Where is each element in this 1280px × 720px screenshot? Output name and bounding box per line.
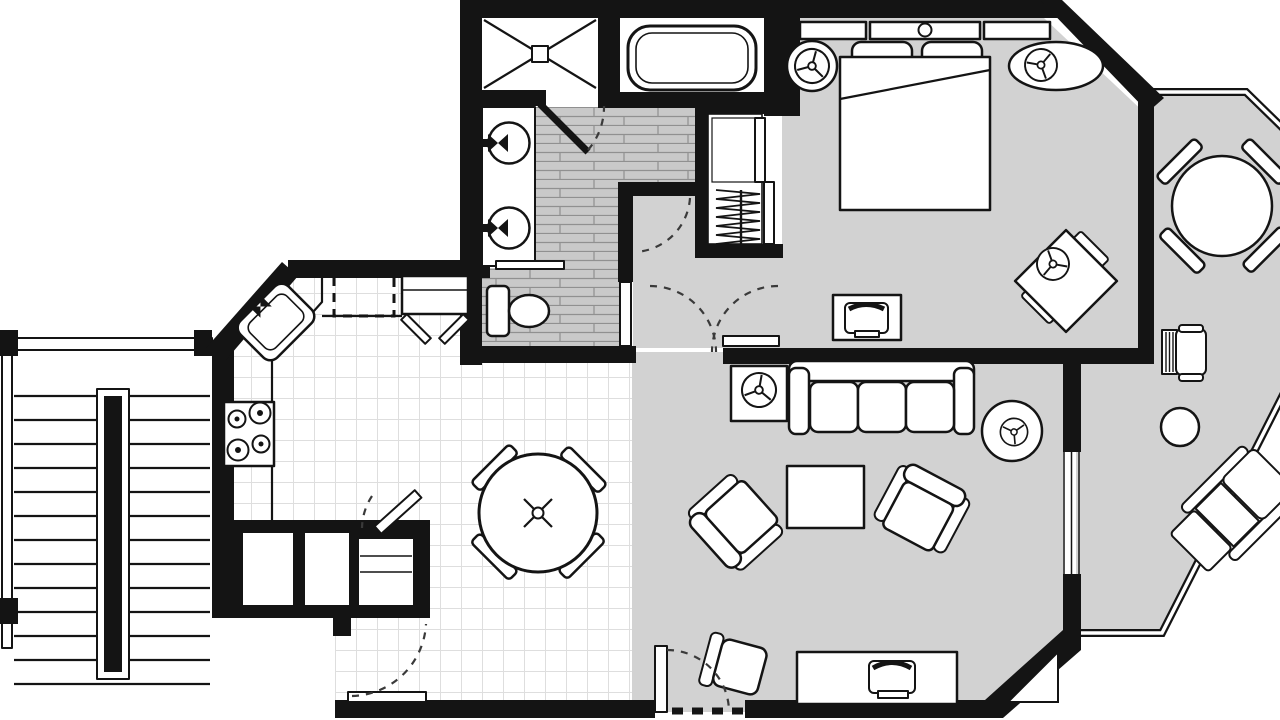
railing-post bbox=[0, 330, 18, 356]
wall-shower-divider bbox=[598, 0, 620, 108]
wall-top bbox=[460, 0, 1060, 18]
bedroom-tv-cabinet bbox=[833, 295, 901, 340]
sofa bbox=[789, 361, 974, 434]
side-table bbox=[1161, 408, 1199, 446]
shower-icon bbox=[482, 18, 598, 90]
wall-closet-south bbox=[695, 244, 783, 258]
bathroom-door-panel bbox=[620, 282, 631, 346]
stairs-top-railing bbox=[2, 338, 212, 350]
headboard bbox=[800, 22, 1050, 39]
nightstand-lamp-icon bbox=[787, 41, 837, 91]
dining-area bbox=[471, 444, 607, 580]
wall-closet-west bbox=[695, 100, 708, 258]
closet bbox=[708, 114, 774, 244]
media-console bbox=[797, 652, 957, 704]
hall-door-panel bbox=[723, 336, 779, 346]
wall-closet-north bbox=[695, 100, 800, 114]
coffee-table bbox=[787, 466, 864, 528]
wall-living-east-lower bbox=[1063, 574, 1081, 634]
closet-sliding-door bbox=[755, 118, 765, 182]
stairs-handrail-core bbox=[104, 396, 122, 672]
wall-bath-east bbox=[618, 196, 633, 282]
square-end-table bbox=[731, 366, 787, 421]
round-end-table bbox=[982, 401, 1042, 461]
cooktop-icon bbox=[224, 402, 274, 466]
wall-living-east-upper bbox=[1063, 352, 1081, 452]
side-chair bbox=[1162, 325, 1206, 381]
nightstand-lamp-icon bbox=[1009, 42, 1103, 90]
wall-utility-stub bbox=[333, 616, 351, 636]
railing-post bbox=[194, 330, 212, 356]
closet-sliding-door bbox=[764, 182, 774, 244]
bathtub-icon bbox=[628, 26, 756, 90]
bed bbox=[840, 42, 990, 210]
wall-nook-north bbox=[618, 182, 713, 196]
stairs bbox=[0, 330, 212, 684]
vanity bbox=[482, 107, 535, 266]
floor-plan-drawing bbox=[0, 0, 1280, 720]
patio-table bbox=[1172, 156, 1272, 256]
floor-plan-page bbox=[0, 0, 1280, 720]
towel-shelf bbox=[496, 261, 564, 269]
wall-under-shower bbox=[460, 88, 546, 106]
wall-bath-south bbox=[460, 346, 636, 363]
